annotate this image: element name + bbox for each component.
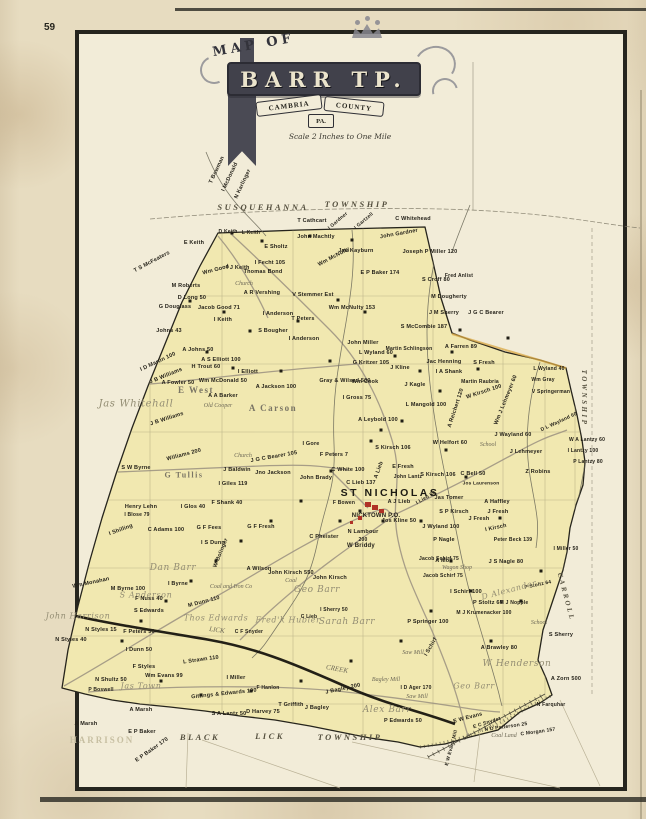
house-icon <box>280 370 283 373</box>
map-label: Wagon Shop <box>442 565 472 571</box>
map-label: V Stemmer Est <box>292 292 333 298</box>
map-label: John Miller <box>347 340 378 346</box>
map-label: A Marsh <box>75 721 98 727</box>
map-label: W A Lantzy 60 <box>569 437 605 443</box>
map-label: P Springer 100 <box>407 619 448 625</box>
house-icon <box>382 520 385 523</box>
house-icon <box>370 440 373 443</box>
map-label: J Lehmeyer <box>510 449 543 455</box>
map-label: CREEK <box>325 663 348 675</box>
map-label: W Henderson <box>483 659 552 669</box>
map-label: D Long 50 <box>178 295 206 301</box>
house-icon <box>337 299 340 302</box>
map-label: N Styles 40 <box>55 637 87 643</box>
red-building-icon <box>358 516 362 520</box>
map-label: Z Robins <box>525 469 550 475</box>
map-label: Henry Lehn <box>125 504 157 510</box>
house-icon <box>351 239 354 242</box>
map-label: I Miller 50 <box>554 546 579 552</box>
house-icon <box>364 311 367 314</box>
map-label: S Bougher <box>258 328 288 334</box>
map-label: F Shank 40 <box>211 500 242 506</box>
map-label: I Miller <box>226 675 245 681</box>
house-icon <box>206 351 209 354</box>
map-label: C Adams 100 <box>148 527 185 533</box>
map-label: T S McFeaters <box>133 250 171 274</box>
house-icon <box>300 500 303 503</box>
map-label: D L Wayland 60 <box>540 411 578 433</box>
map-label: I Glos 40 <box>181 504 206 510</box>
map-label: S P Kirsch <box>439 509 468 515</box>
map-label: P Boswell <box>88 687 113 693</box>
house-icon <box>430 610 433 613</box>
house-icon <box>401 420 404 423</box>
map-label: N Farquhar <box>537 702 566 708</box>
map-label: S Kirsch 106 <box>375 445 410 451</box>
map-label: CARROLL <box>556 572 577 622</box>
map-label: Alex Barr <box>363 705 412 715</box>
house-icon <box>261 240 264 243</box>
map-label: L Strawn 110 <box>183 655 219 666</box>
house-icon <box>140 620 143 623</box>
map-label: I Fecht 105 <box>255 260 286 266</box>
house-icon <box>350 660 353 663</box>
map-label: Jas Town <box>121 682 162 691</box>
map-label: Jacob Good 71 <box>198 305 240 311</box>
house-icon <box>329 360 332 363</box>
map-label: A Lieb <box>373 461 385 480</box>
house-icon <box>451 351 454 354</box>
map-label: N Lambour <box>348 529 379 535</box>
house-icon <box>419 370 422 373</box>
map-label: J Wayland 60 <box>494 432 531 438</box>
map-label: Coal Land <box>491 733 517 739</box>
house-icon <box>249 330 252 333</box>
map-label: John Kirsch <box>313 575 347 581</box>
red-building-icon <box>350 521 353 524</box>
crown-dot <box>355 20 360 25</box>
map-label: S Fresh <box>473 360 495 366</box>
map-label: Dan Barr <box>150 563 197 573</box>
map-label: L Mangold 100 <box>406 402 447 408</box>
map-label: I Dunn 50 <box>126 647 153 653</box>
house-icon <box>445 449 448 452</box>
map-label: A Jackson 100 <box>256 384 297 390</box>
map-label: E P Baker 174 <box>361 270 400 276</box>
map-label: John Gardner <box>380 228 419 241</box>
map-label: F Bowen <box>333 500 355 506</box>
house-icon <box>450 560 453 563</box>
house-icon <box>121 640 124 643</box>
map-label: Wm McNulty 153 <box>329 305 376 311</box>
house-icon <box>300 680 303 683</box>
atlas-page: { "page_number": "59", "title": { "map_o… <box>0 0 646 819</box>
map-label: A Farren 89 <box>445 344 477 350</box>
map-label: Jas Whitehall <box>99 399 174 410</box>
map-label: L Wyland 60 <box>359 350 393 356</box>
map-label: S McCombie 187 <box>401 324 448 330</box>
map-label: L Keith <box>242 230 260 236</box>
map-label: Fred Anlist <box>445 273 473 279</box>
map-label: I Gross 75 <box>343 395 372 401</box>
map-label: I Keith <box>214 317 232 323</box>
map-label: A R Vershing <box>244 290 280 296</box>
map-label: Wm Monahan <box>72 576 110 590</box>
map-label: Geo Barr <box>294 585 340 595</box>
map-label: A Haffley <box>484 499 509 505</box>
map-label: Williams 200 <box>166 448 202 463</box>
map-label: G Tullis <box>165 471 204 480</box>
map-label: A J Lieb <box>388 499 411 505</box>
map-label: D Harvey 75 <box>246 709 280 715</box>
house-icon <box>459 329 462 332</box>
title-banner: BARR TP. <box>227 62 421 96</box>
map-label: E P Baker 170 <box>134 736 169 763</box>
map-label: Bagley Mill <box>372 677 400 683</box>
map-label: F Hanlon <box>257 685 280 691</box>
scale-note: Scale 2 Inches to One Mile <box>270 132 410 141</box>
map-label: D Keith <box>219 229 238 235</box>
map-label: John Lantz <box>394 474 422 480</box>
map-label: Jacob Schirf 75 <box>423 573 463 579</box>
map-label: C F Snyder <box>235 629 263 635</box>
house-icon <box>330 470 333 473</box>
map-label: Joseph P Miller 120 <box>403 249 458 255</box>
map-label: Jac Henning <box>427 359 462 365</box>
house-icon <box>160 680 163 683</box>
map-label: Wm Gray <box>531 377 554 383</box>
map-label: I Blose 79 <box>124 512 149 518</box>
map-label: C Morgan 157 <box>520 727 556 738</box>
map-label: Church <box>235 281 253 287</box>
map-label: T Cathcart <box>297 218 326 224</box>
map-label: School <box>531 620 547 626</box>
map-label: BLACK <box>180 732 220 742</box>
map-label: M Dougherty <box>431 294 467 300</box>
map-label: P Nagle <box>433 537 454 543</box>
map-label: I Byrne <box>168 581 188 587</box>
map-label: G F Fees <box>197 525 222 531</box>
map-label: T Griffith <box>278 702 303 708</box>
map-label: Wm Cook <box>352 379 379 385</box>
map-label: I Gardner <box>327 211 349 231</box>
map-label: W Helfort 60 <box>433 440 468 446</box>
map-label: M Dunn 110 <box>187 595 220 609</box>
map-label: TOWNSHIP <box>318 732 383 742</box>
map-label: S Edwards <box>134 608 164 614</box>
map-label: Martin Raubria <box>461 379 499 385</box>
map-label: S A Lantz 50 <box>212 711 247 717</box>
house-icon <box>439 390 442 393</box>
map-label: P Lantzy 80 <box>573 459 603 465</box>
house-icon <box>490 640 493 643</box>
map-label: N Styles 15 <box>85 627 117 633</box>
house-icon <box>231 232 234 235</box>
map-label: Saw Mill <box>402 650 424 656</box>
map-label: S Kirsch 106 <box>420 472 455 478</box>
crown-dot <box>375 20 380 25</box>
map-label: G F Fresh <box>247 524 274 530</box>
map-label: A Leybold 100 <box>358 417 398 423</box>
house-icon <box>477 368 480 371</box>
map-label: T Peters <box>291 316 314 322</box>
house-icon <box>250 690 253 693</box>
state-label: PA. <box>308 114 334 128</box>
house-icon <box>190 580 193 583</box>
map-label: J S Nagle 80 <box>489 559 524 565</box>
map-label: Saw Mill <box>406 694 428 700</box>
map-label: SUSQUEHANNA <box>217 202 308 212</box>
map-label: John Brady <box>300 475 332 481</box>
map-label: I Gartzell <box>353 211 375 230</box>
house-icon <box>339 520 342 523</box>
map-label: TOWNSHIP <box>580 370 588 427</box>
red-building-icon <box>372 505 378 510</box>
map-label: D Alexander <box>480 578 537 601</box>
map-label: E P Baker <box>128 729 155 735</box>
house-icon <box>465 476 468 479</box>
house-icon <box>394 355 397 358</box>
house-icon <box>470 590 473 593</box>
map-label: M Roberts <box>172 283 201 289</box>
house-icon <box>400 640 403 643</box>
map-label: A Marsh <box>130 707 153 713</box>
map-label: I Anderson <box>289 336 320 342</box>
map-label: F Peters 7 <box>320 452 348 458</box>
map-label: G Kritzer 105 <box>353 360 390 366</box>
map-label: I Elliott <box>238 369 258 375</box>
map-label: J Kagle <box>405 382 426 388</box>
map-label: Jas Tomer <box>435 495 464 501</box>
map-label: F Nuss 40 <box>135 596 163 602</box>
map-label: A Brawley 80 <box>481 645 517 651</box>
map-label: Thos Edwards <box>184 614 249 623</box>
house-icon <box>232 367 235 370</box>
map-label: J M Sherry <box>429 310 459 316</box>
map-label: Johns 43 <box>156 328 181 334</box>
house-icon <box>270 520 273 523</box>
house-icon <box>520 600 523 603</box>
map-label: E Sholtz <box>264 244 287 250</box>
map-label: School <box>480 442 496 448</box>
map-label: J Baldwin <box>223 467 250 473</box>
map-label: John Kirsch 550 <box>268 570 314 576</box>
map-label: C White 100 <box>331 467 364 473</box>
map-label: I J Keith <box>226 265 249 271</box>
map-label: J Bagley <box>305 705 329 711</box>
map-label: J Bagley 200 <box>325 682 361 695</box>
red-building-icon <box>365 502 371 507</box>
map-label: Coal <box>285 578 297 584</box>
map-label: J Fresh <box>469 516 490 522</box>
map-label: LICK <box>209 625 226 635</box>
house-icon <box>420 520 423 523</box>
house-icon <box>200 694 203 697</box>
map-label: TOWNSHIP <box>325 199 390 209</box>
map-label: Peter Beck 139 <box>494 537 532 543</box>
map-label: A Zorn 500 <box>551 676 581 682</box>
house-icon <box>359 510 362 513</box>
map-label: M J Nopple <box>500 600 529 606</box>
map-label: A Carson <box>249 403 297 413</box>
house-icon <box>297 320 300 323</box>
map-label: A Reichert 120 <box>447 388 465 429</box>
map-label: F Peters 50 <box>123 629 155 635</box>
map-label: J Wyland 100 <box>422 524 459 530</box>
map-label: E W Evans Mill <box>445 730 459 767</box>
house-icon <box>380 429 383 432</box>
map-label: A A Barker <box>208 393 238 399</box>
map-label: I Anderson <box>263 311 294 317</box>
house-icon <box>309 235 312 238</box>
map-label: I Shilling <box>108 523 133 537</box>
map-label: A S Elliott 100 <box>201 357 240 363</box>
map-label: S Sherry <box>549 632 573 638</box>
map-label: S W Byrne <box>121 465 150 471</box>
red-building-icon <box>379 509 384 513</box>
house-icon <box>189 300 192 303</box>
map-label: A Johns 50 <box>182 347 213 353</box>
map-label: C Whitehead <box>395 216 431 222</box>
house-icon <box>223 311 226 314</box>
map-label: I Giles 119 <box>218 481 247 487</box>
house-icon <box>540 570 543 573</box>
map-label: J Fresh <box>488 509 509 515</box>
map-label: Jno Jackson <box>255 470 291 476</box>
map-label: L Wyland 40 <box>533 366 564 372</box>
map-label: V Springerman <box>532 389 570 395</box>
map-label: I D Ager 170 <box>400 685 431 691</box>
map-label: Coal and Iron Co <box>210 584 252 590</box>
map-label: I Gore <box>302 441 319 447</box>
map-label: J B Williams <box>150 411 185 427</box>
map-label: W Briddy <box>347 543 375 549</box>
map-label: John Harrison <box>46 612 111 621</box>
map-label: T Bowman <box>208 155 226 184</box>
map-label: John Machtly <box>297 234 335 240</box>
map-label: W Kirsch 100 <box>466 383 503 400</box>
map-label: Sarah Barr <box>319 617 375 627</box>
map-label: Wm McDonald 50 <box>199 378 247 384</box>
map-label: HARRISON <box>70 735 135 745</box>
map-label: J G C Bearer <box>468 310 504 316</box>
map-label: J Kline <box>390 365 409 371</box>
house-icon <box>165 600 168 603</box>
crown-dot <box>365 16 370 21</box>
house-icon <box>499 517 502 520</box>
map-label: Wm Evans 99 <box>145 673 183 679</box>
map-label: LICK <box>255 731 285 741</box>
map-label: F Styles <box>133 664 156 670</box>
map-label: H Trout 60 <box>192 364 221 370</box>
map-label: P Stoltz 64 <box>473 600 503 606</box>
map-label: Geo Barr <box>453 682 495 691</box>
map-label: J G C Bearer 105 <box>250 450 298 464</box>
map-label: C Lieb <box>301 614 317 620</box>
map-label: Church <box>234 453 252 459</box>
map-label: Old Cooper <box>204 403 233 409</box>
map-label: E Fresh <box>392 464 414 470</box>
house-icon <box>215 560 218 563</box>
map-label: E Keith <box>184 240 204 246</box>
map-label: Jos Kline 50 <box>382 518 417 524</box>
map-label: I Schirf <box>423 637 438 658</box>
map-label: Jos Laurenson <box>463 482 500 487</box>
map-label: I Schirf 100 <box>450 589 482 595</box>
map-label: I Sherry 50 <box>320 607 348 613</box>
map-label: I Kirsch <box>485 523 508 533</box>
map-label: C Lieb 137 <box>346 480 376 486</box>
map-label: M J Krumenacker 100 <box>456 610 511 616</box>
map-label: N Karlinger <box>234 168 253 199</box>
township-name: BARR TP. <box>240 67 408 92</box>
map-label: P Edwards 50 <box>384 718 422 724</box>
map-label: C Pheister <box>309 534 338 540</box>
map-label: I Lantzy 100 <box>568 448 599 454</box>
map-label: I A Shank <box>436 369 462 375</box>
house-icon <box>507 337 510 340</box>
house-icon <box>240 540 243 543</box>
map-label: G Douglass <box>159 304 192 310</box>
map-label: Wm McNulty <box>317 246 351 268</box>
